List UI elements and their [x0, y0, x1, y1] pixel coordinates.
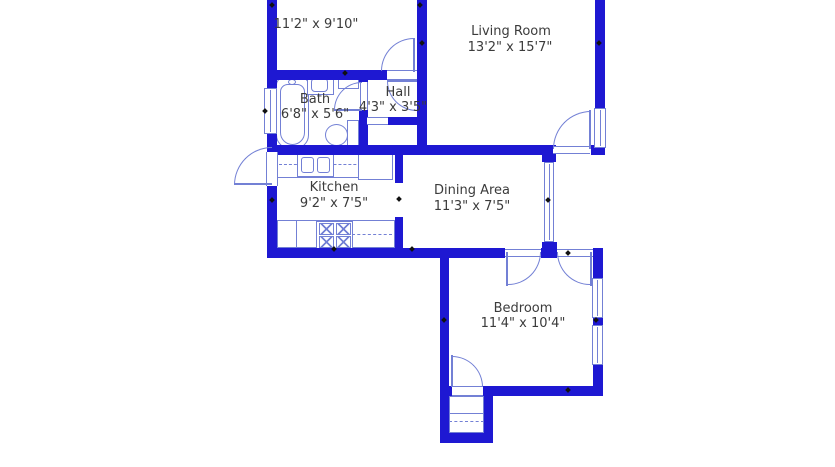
kitchen-counter-divider: [296, 220, 297, 248]
wall: [267, 248, 505, 258]
bathroom-sink-basin: [311, 78, 328, 92]
wall: [440, 248, 449, 443]
wall: [395, 152, 403, 183]
dining-window: [544, 162, 554, 242]
stove-burner: [336, 223, 351, 235]
closet-door-threshold: [452, 386, 483, 396]
bath-dimensions: 6'8" x 5'6": [281, 108, 349, 122]
dimension-marker: [396, 196, 402, 202]
wall: [441, 433, 493, 443]
hall-label: Hall: [386, 86, 411, 100]
wall: [267, 145, 553, 155]
bedroom-label: Bedroom: [494, 302, 553, 316]
wall: [483, 386, 603, 396]
kitchen-counter-dash-bottom: [352, 234, 392, 235]
bedroom-closet-interior: [449, 396, 484, 433]
dining-area-dimensions: 11'3" x 7'5": [434, 200, 510, 214]
wall: [388, 117, 427, 125]
wall: [359, 70, 368, 82]
hall-closet-threshold: [367, 117, 388, 125]
stove-burner: [319, 223, 334, 235]
living-room-door-arc: [553, 111, 591, 149]
wall: [595, 0, 605, 108]
stove-burner: [336, 236, 351, 248]
living-room-label: Living Room: [471, 25, 551, 39]
living-room-dimensions: 13'2" x 15'7": [468, 41, 553, 55]
closet-rod-dash: [449, 421, 484, 422]
bedroom-window-1: [592, 278, 603, 318]
closet-shelf-line: [449, 413, 484, 414]
wall: [417, 0, 427, 153]
stove-burner: [319, 236, 334, 248]
upper-room-door-arc: [381, 38, 414, 71]
wall: [593, 248, 603, 278]
toilet-bowl: [325, 124, 348, 146]
dining-area-label: Dining Area: [434, 184, 510, 198]
kitchen-label: Kitchen: [310, 181, 359, 195]
kitchen-exterior-door-arc: [234, 147, 272, 185]
living-room-window: [594, 108, 606, 148]
wall: [267, 70, 387, 80]
hall-dimensions: 4'3" x 3'5": [359, 101, 427, 115]
closet-door-arc: [452, 356, 483, 387]
upper-room-dimensions: 11'2" x 9'10": [274, 18, 359, 32]
bedroom-door-right-leaf: [590, 252, 592, 286]
kitchen-sink-basin-right: [317, 157, 330, 173]
bath-label: Bath: [300, 93, 330, 107]
bedroom-window-2: [592, 325, 603, 365]
floor-plan: 11'2" x 9'10" Living Room 13'2" x 15'7" …: [0, 0, 835, 467]
kitchen-sink-basin-left: [301, 157, 314, 173]
bedroom-door-right-arc: [557, 252, 590, 285]
bedroom-door-left-arc: [508, 252, 541, 285]
kitchen-dimensions: 9'2" x 7'5": [300, 197, 368, 211]
bedroom-dimensions: 11'4" x 10'4": [481, 317, 566, 331]
kitchen-cabinet-right: [358, 152, 393, 180]
wall: [541, 248, 557, 258]
wall: [441, 386, 452, 396]
